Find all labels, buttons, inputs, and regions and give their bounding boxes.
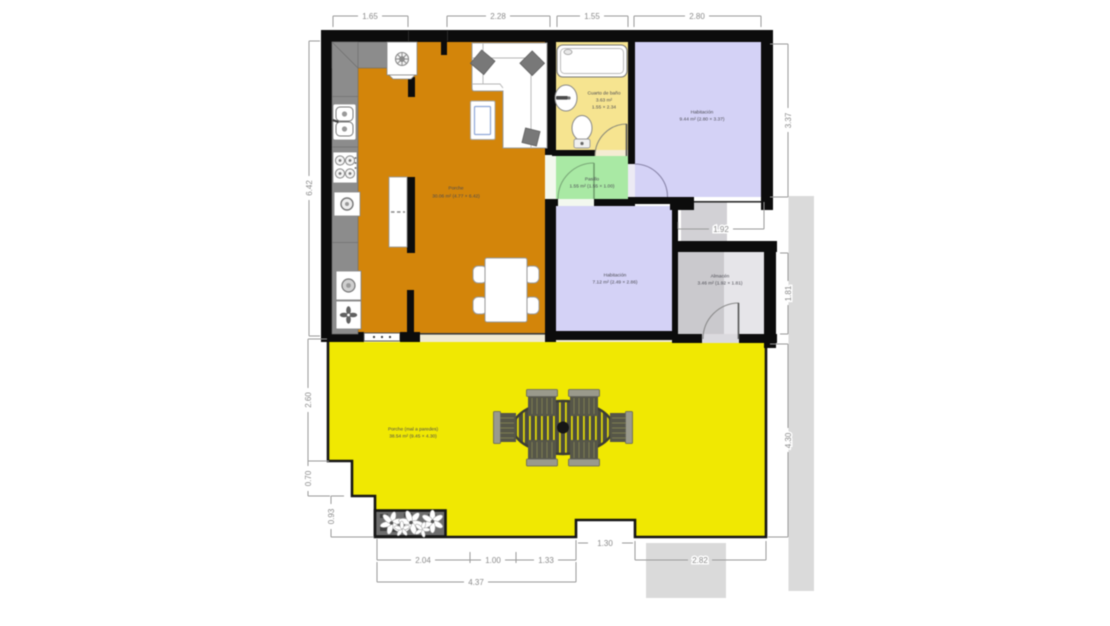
svg-text:1.92: 1.92 <box>713 225 729 234</box>
svg-text:2.04: 2.04 <box>415 556 431 565</box>
svg-text:3.46 m² (1.92 × 1.81): 3.46 m² (1.92 × 1.81) <box>698 281 743 287</box>
svg-text:1.55 × 2.34: 1.55 × 2.34 <box>592 105 616 111</box>
svg-text:1.55: 1.55 <box>584 12 600 21</box>
svg-text:7.12 m² (2.49 × 2.86): 7.12 m² (2.49 × 2.86) <box>593 280 638 286</box>
svg-text:2.60: 2.60 <box>304 392 313 408</box>
svg-text:3.63 m²: 3.63 m² <box>596 98 613 104</box>
svg-text:6.42: 6.42 <box>305 180 314 196</box>
svg-text:1.00: 1.00 <box>485 556 501 565</box>
svg-text:0.93: 0.93 <box>327 508 336 524</box>
svg-text:1.65: 1.65 <box>362 12 378 21</box>
svg-text:Pasillo: Pasillo <box>585 177 599 183</box>
svg-text:2.80: 2.80 <box>689 12 705 21</box>
svg-text:1.33: 1.33 <box>538 556 554 565</box>
svg-text:Habitación: Habitación <box>691 110 714 116</box>
svg-text:Cuarto de baño: Cuarto de baño <box>587 91 620 97</box>
svg-text:Habitación: Habitación <box>604 273 627 279</box>
svg-text:30.06 m² (4.77 × 6.42): 30.06 m² (4.77 × 6.42) <box>432 194 480 200</box>
svg-text:1.30: 1.30 <box>597 539 613 548</box>
svg-text:Almacén: Almacén <box>711 274 730 280</box>
svg-text:4.37: 4.37 <box>468 578 484 587</box>
svg-text:2.82: 2.82 <box>692 556 708 565</box>
svg-text:4.30: 4.30 <box>784 432 793 448</box>
svg-text:1.81: 1.81 <box>784 285 793 301</box>
svg-text:1.55 m² (1.55 × 1.00): 1.55 m² (1.55 × 1.00) <box>570 184 615 190</box>
svg-text:Porche (mal a paredes): Porche (mal a paredes) <box>388 427 439 433</box>
svg-text:3.37: 3.37 <box>784 112 793 128</box>
svg-text:38.54 m² (9.45 × 4.30): 38.54 m² (9.45 × 4.30) <box>389 434 437 440</box>
svg-text:2.28: 2.28 <box>490 12 506 21</box>
svg-text:9.44 m² (2.80 × 3.37): 9.44 m² (2.80 × 3.37) <box>680 117 725 123</box>
svg-text:0.70: 0.70 <box>304 470 313 486</box>
svg-text:Porche: Porche <box>448 186 464 192</box>
